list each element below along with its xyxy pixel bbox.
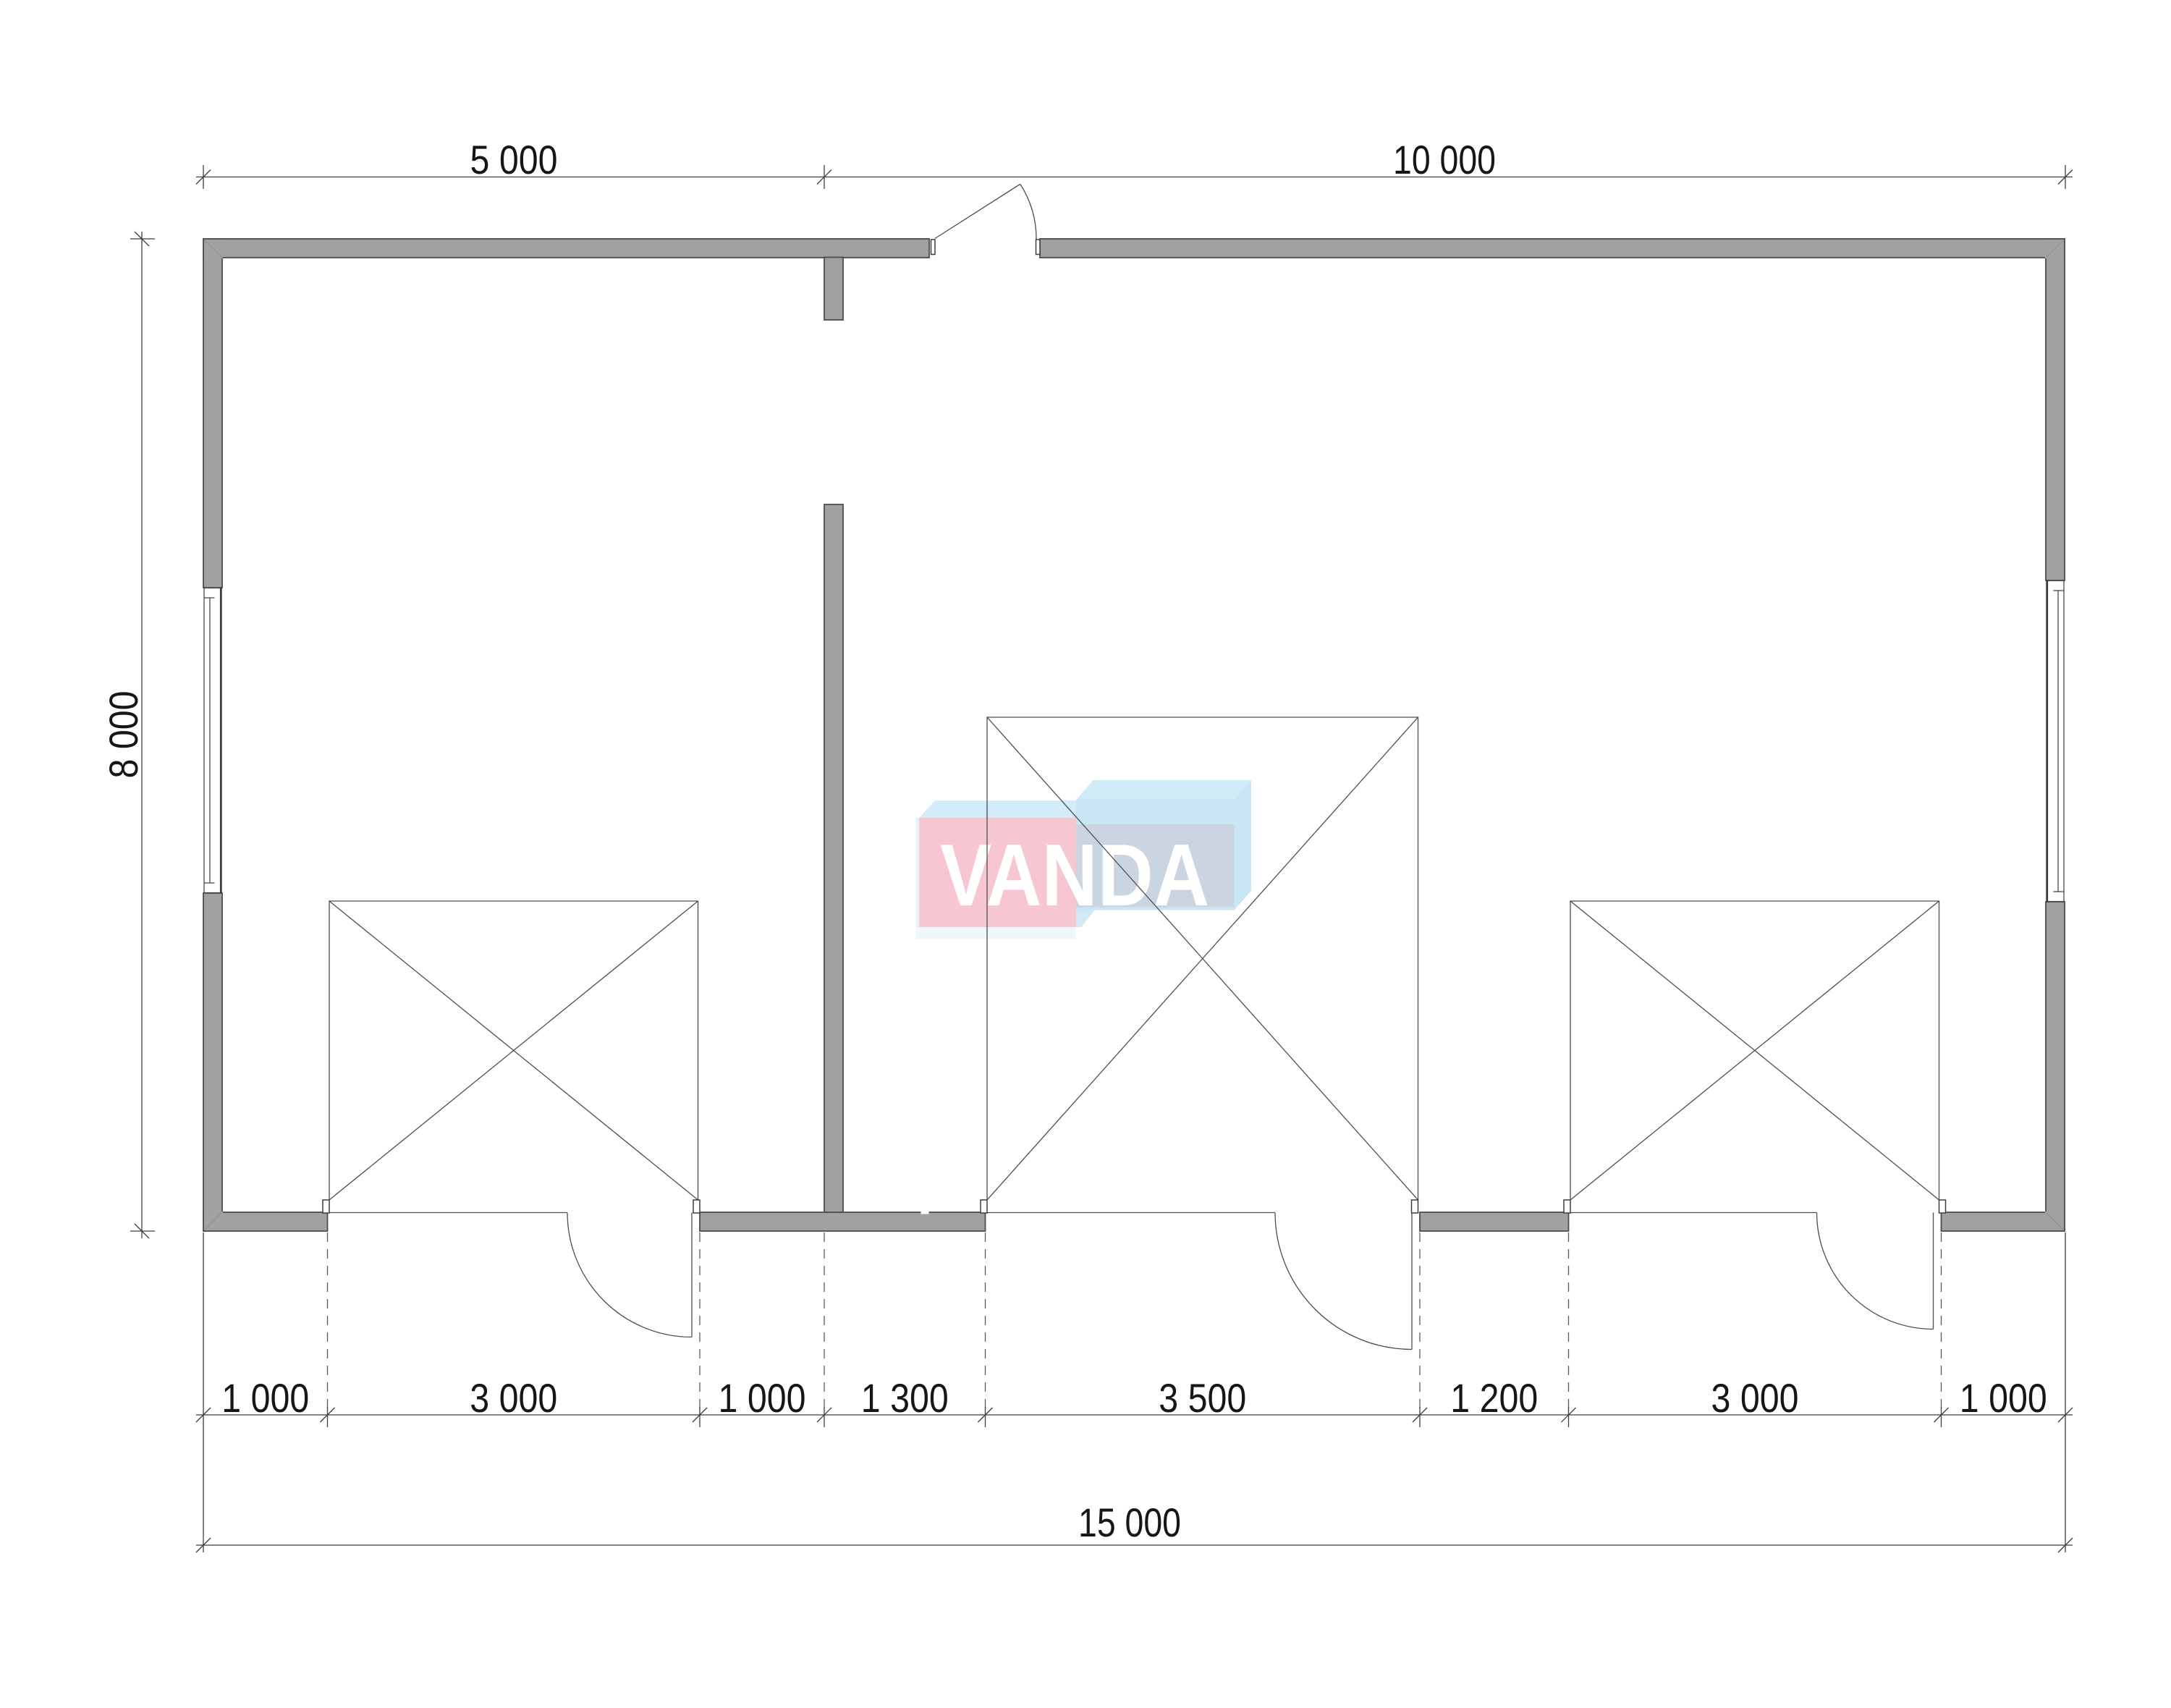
svg-text:1 000: 1 000 [1960, 1375, 2047, 1421]
svg-text:VANDA: VANDA [940, 826, 1209, 924]
svg-text:3 000: 3 000 [470, 1375, 557, 1421]
svg-text:1 000: 1 000 [221, 1375, 309, 1421]
svg-text:5 000: 5 000 [470, 137, 558, 182]
svg-text:1 300: 1 300 [861, 1375, 949, 1421]
svg-text:3 500: 3 500 [1159, 1375, 1246, 1421]
svg-text:3 000: 3 000 [1711, 1375, 1799, 1421]
svg-text:10 000: 10 000 [1393, 137, 1496, 182]
svg-text:1 000: 1 000 [719, 1375, 806, 1421]
svg-text:8 000: 8 000 [101, 691, 146, 779]
svg-text:15 000: 15 000 [1078, 1500, 1181, 1545]
svg-text:1 200: 1 200 [1450, 1375, 1538, 1421]
